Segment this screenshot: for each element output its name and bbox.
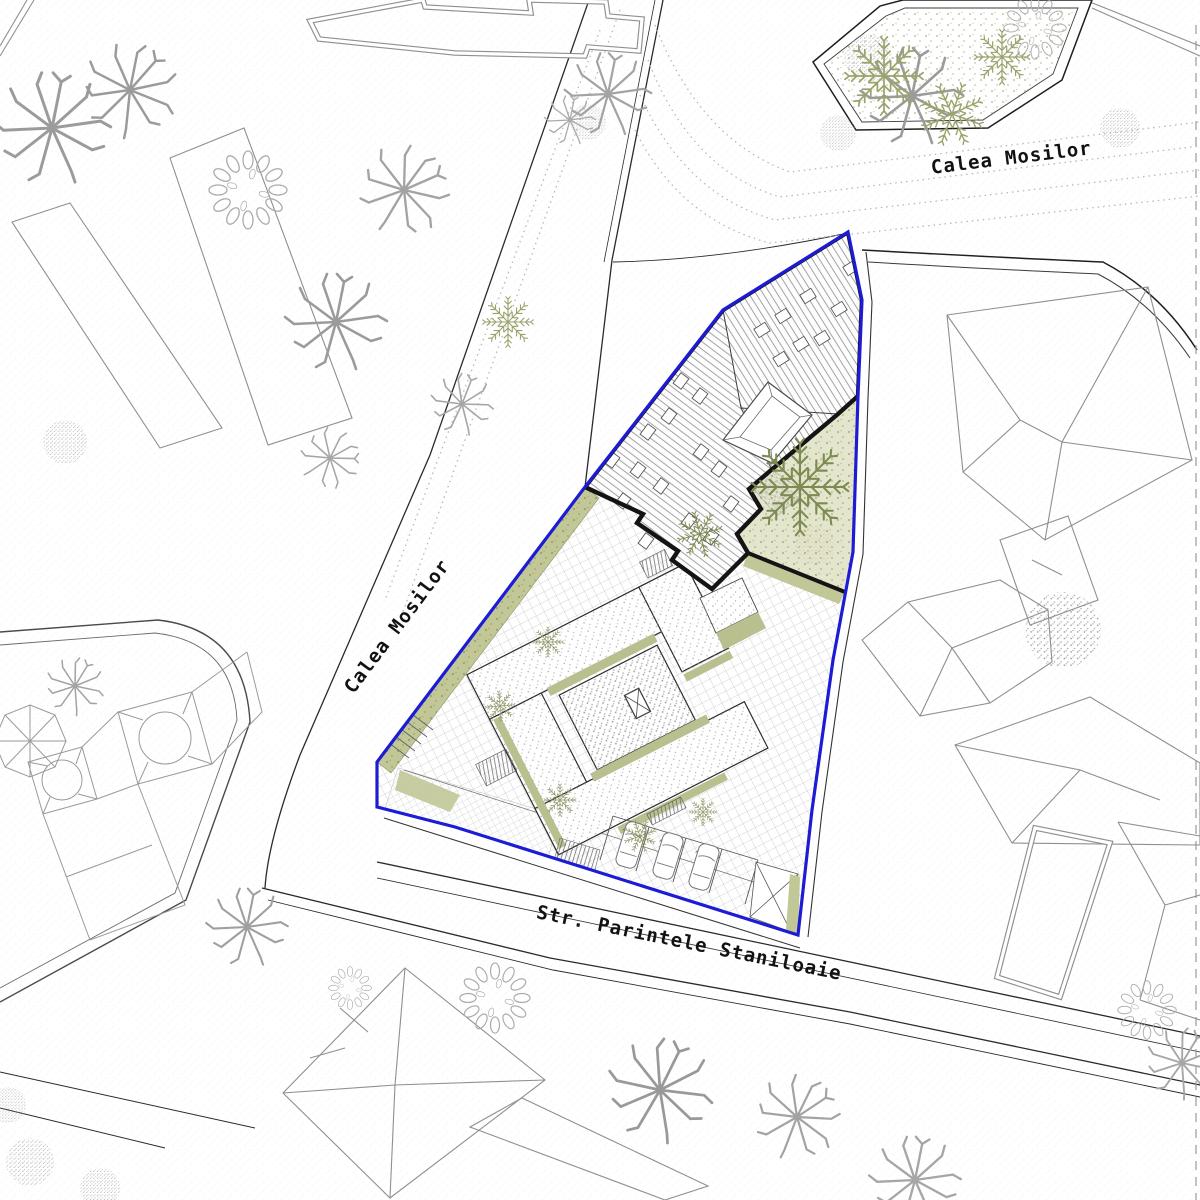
tree-db xyxy=(6,1138,54,1186)
tree-db xyxy=(1100,108,1140,148)
tree-db xyxy=(820,115,856,151)
tree-db xyxy=(1025,592,1101,668)
tree-db xyxy=(570,104,606,140)
site-plan-canvas: Calea Mosilor Calea Mosilor Str. Parinte… xyxy=(0,0,1200,1200)
site-plan-drawing: Calea Mosilor Calea Mosilor Str. Parinte… xyxy=(0,0,1200,1200)
tree-db xyxy=(43,420,87,464)
tree-tb xyxy=(795,525,835,565)
